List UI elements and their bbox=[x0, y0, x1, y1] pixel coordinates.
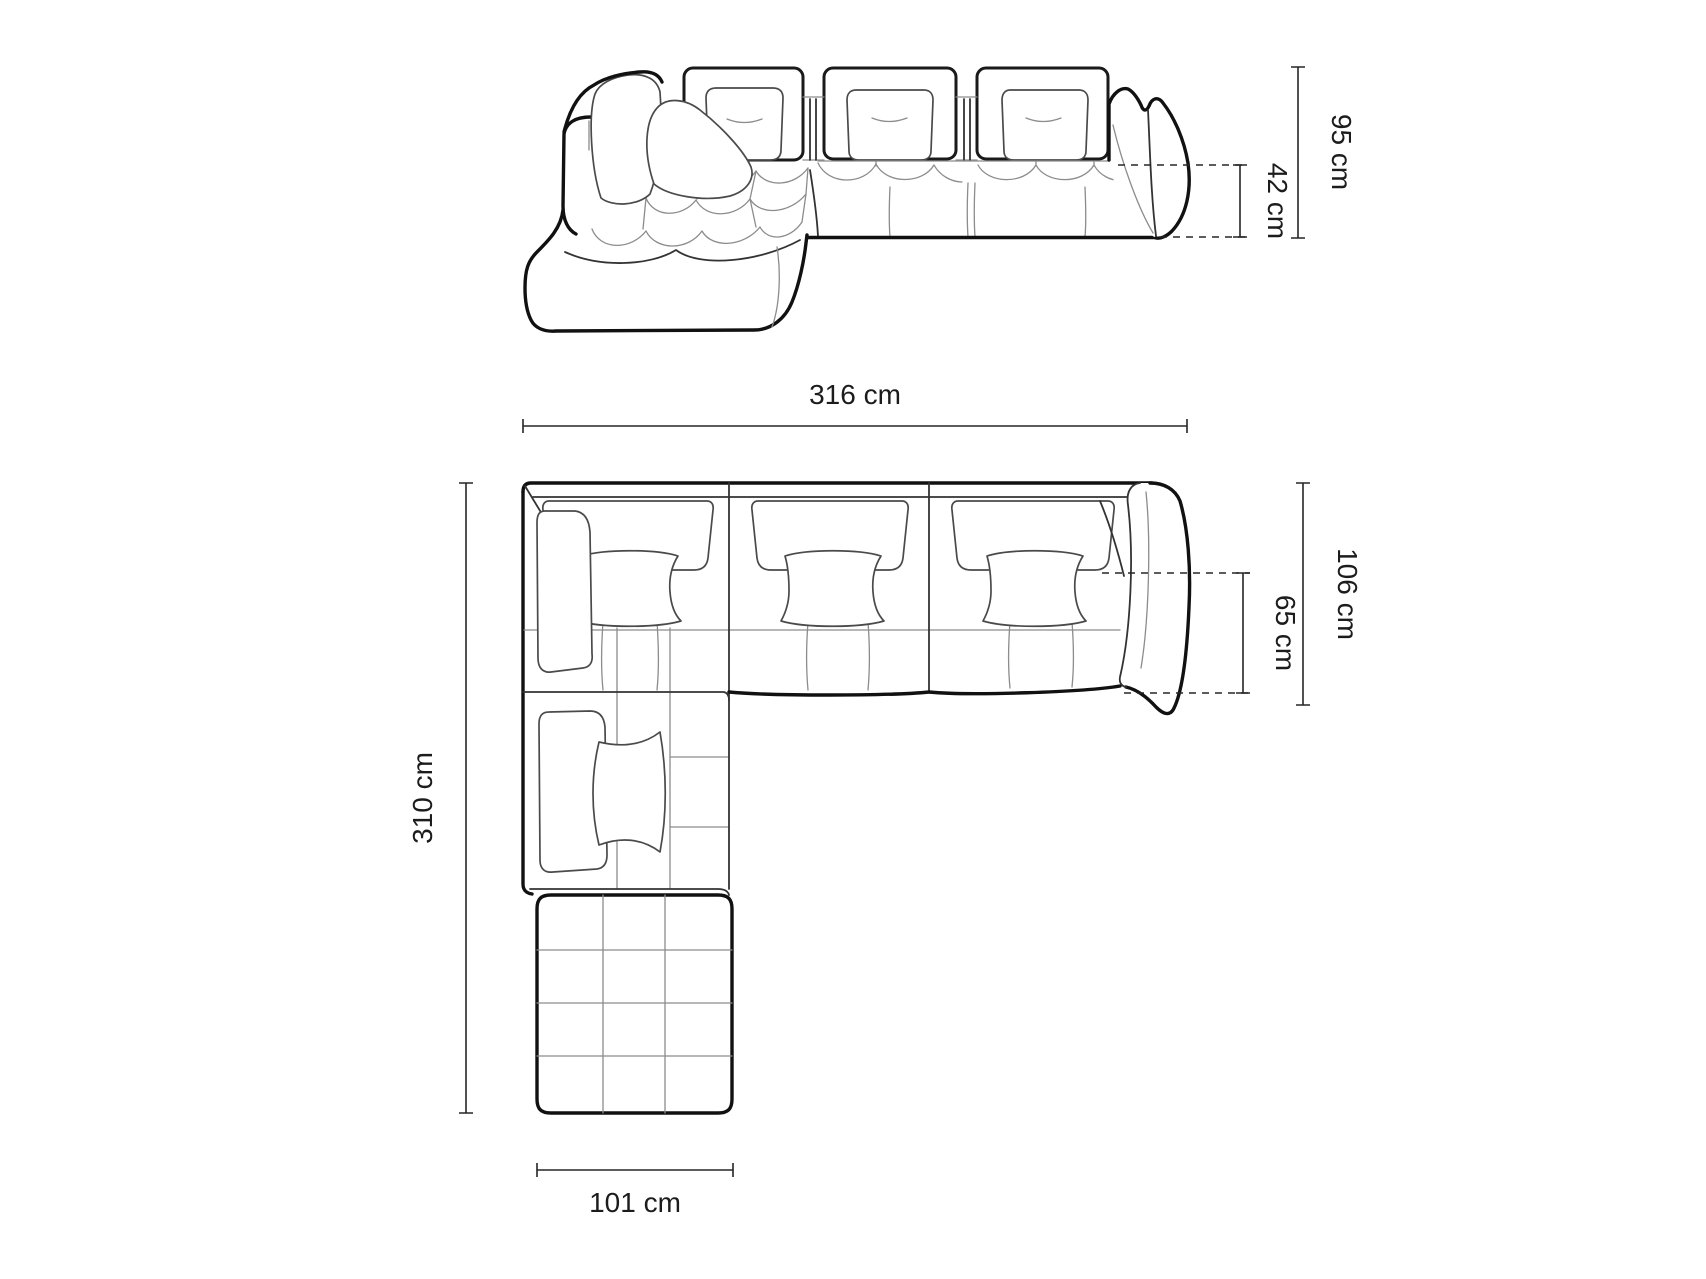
chaise-width-dimension-line bbox=[537, 1163, 733, 1177]
dim-label-chaise-width: 101 cm bbox=[589, 1187, 681, 1218]
chaise-small-pillow bbox=[593, 732, 665, 852]
plan-small-pillow-1 bbox=[578, 551, 681, 627]
right-arm bbox=[1109, 89, 1189, 239]
diagram-canvas: 42 cm 95 cm bbox=[0, 0, 1706, 1279]
corner-module-boundary bbox=[523, 692, 729, 700]
overall-depth-dimension-line bbox=[459, 483, 473, 1113]
ottoman-outline bbox=[537, 895, 732, 1113]
section-divider-line bbox=[810, 99, 816, 160]
chaise-top-edge bbox=[565, 240, 800, 263]
top-plan-view: 316 cm 310 cm 65 cm 106 cm 101 cm bbox=[407, 379, 1363, 1218]
dim-label-seat-height: 42 cm bbox=[1262, 163, 1293, 239]
plan-front-edge bbox=[729, 686, 1120, 695]
dim-label-seat-depth: 65 cm bbox=[1270, 595, 1301, 671]
section-divider-line bbox=[964, 99, 970, 160]
plan-back-edge bbox=[523, 483, 1152, 492]
dim-label-side-depth: 106 cm bbox=[1332, 548, 1363, 640]
front-elevation-view: 42 cm 95 cm bbox=[525, 67, 1357, 331]
ottoman-tuft-grid bbox=[537, 895, 732, 1113]
seat-tufting bbox=[818, 163, 1120, 182]
left-arm bbox=[563, 117, 591, 235]
corner-backrest-pillow bbox=[537, 511, 592, 672]
overall-width-dimension-line bbox=[523, 419, 1187, 433]
inner-pillow-3 bbox=[1002, 90, 1088, 160]
plan-small-pillow-2 bbox=[781, 551, 884, 627]
sofa-dimension-diagram: 42 cm 95 cm bbox=[0, 0, 1706, 1279]
dim-label-overall-width: 316 cm bbox=[809, 379, 901, 410]
seat-depth-dimension-line bbox=[1236, 573, 1250, 693]
chaise-front-crease bbox=[772, 247, 779, 327]
dim-label-overall-height: 95 cm bbox=[1326, 114, 1357, 190]
seat-height-dimension-line bbox=[1233, 165, 1247, 237]
inner-pillow-2 bbox=[847, 90, 933, 160]
plan-small-pillow-3 bbox=[983, 551, 1086, 627]
dim-label-overall-depth: 310 cm bbox=[407, 752, 438, 844]
plan-left-edge bbox=[523, 492, 532, 894]
